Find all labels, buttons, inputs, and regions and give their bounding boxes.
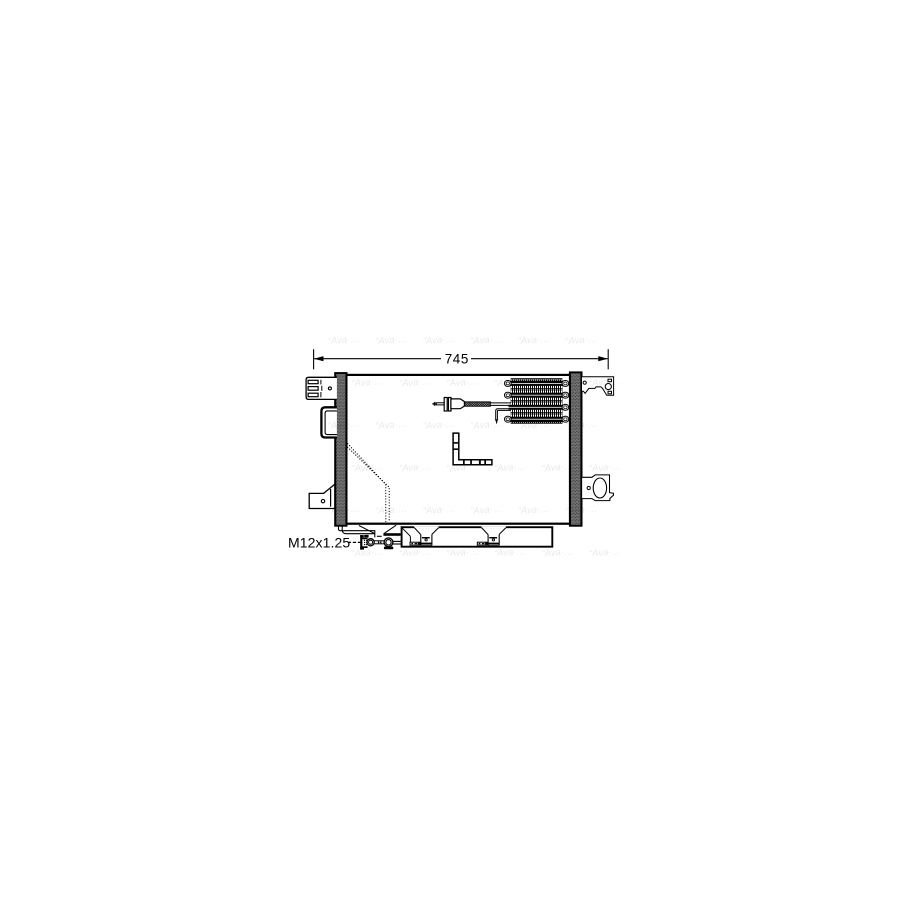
svg-text:745: 745 <box>445 351 469 366</box>
svg-text:“Ava·…: “Ava·… <box>470 334 503 347</box>
svg-text:“Ava·…: “Ava·… <box>351 546 384 559</box>
svg-text:“Ava·…: “Ava·… <box>422 504 455 517</box>
svg-text:“Ava·…: “Ava·… <box>517 504 550 517</box>
svg-text:“Ava·…: “Ava·… <box>422 419 455 432</box>
svg-text:“Ava·…: “Ava·… <box>375 504 408 517</box>
svg-text:“Ava·…: “Ava·… <box>327 419 360 432</box>
svg-text:“Ava·…: “Ava·… <box>494 546 527 559</box>
svg-text:“Ava·…: “Ava·… <box>446 376 479 389</box>
svg-text:“Ava·…: “Ava·… <box>565 504 598 517</box>
svg-text:“Ava·…: “Ava·… <box>565 334 598 347</box>
svg-text:“Ava·…: “Ava·… <box>517 334 550 347</box>
svg-text:“Ava·…: “Ava·… <box>494 461 527 474</box>
svg-text:“Ava·…: “Ava·… <box>470 504 503 517</box>
svg-text:“Ava·…: “Ava·… <box>446 461 479 474</box>
svg-text:“Ava·…: “Ava·… <box>351 461 384 474</box>
svg-text:“Ava·…: “Ava·… <box>589 461 622 474</box>
svg-text:“Ava·…: “Ava·… <box>589 376 622 389</box>
svg-text:“Ava·…: “Ava·… <box>565 419 598 432</box>
svg-text:“Ava·…: “Ava·… <box>399 461 432 474</box>
svg-text:“Ava·…: “Ava·… <box>422 334 455 347</box>
svg-text:“Ava·…: “Ava·… <box>446 546 479 559</box>
svg-text:“Ava·…: “Ava·… <box>470 419 503 432</box>
svg-text:“Ava·…: “Ava·… <box>517 419 550 432</box>
svg-text:“Ava·…: “Ava·… <box>494 376 527 389</box>
svg-text:“Ava·…: “Ava·… <box>351 376 384 389</box>
svg-text:“Ava·…: “Ava·… <box>327 334 360 347</box>
svg-text:“Ava·…: “Ava·… <box>541 376 574 389</box>
svg-text:“Ava·…: “Ava·… <box>541 461 574 474</box>
svg-text:“Ava·…: “Ava·… <box>541 546 574 559</box>
svg-text:“Ava·…: “Ava·… <box>399 376 432 389</box>
svg-text:“Ava·…: “Ava·… <box>589 546 622 559</box>
svg-text:“Ava·…: “Ava·… <box>375 334 408 347</box>
svg-text:“Ava·…: “Ava·… <box>399 546 432 559</box>
svg-text:“Ava·…: “Ava·… <box>375 419 408 432</box>
svg-text:“Ava·…: “Ava·… <box>327 504 360 517</box>
svg-text:M12x1.25: M12x1.25 <box>288 535 350 551</box>
